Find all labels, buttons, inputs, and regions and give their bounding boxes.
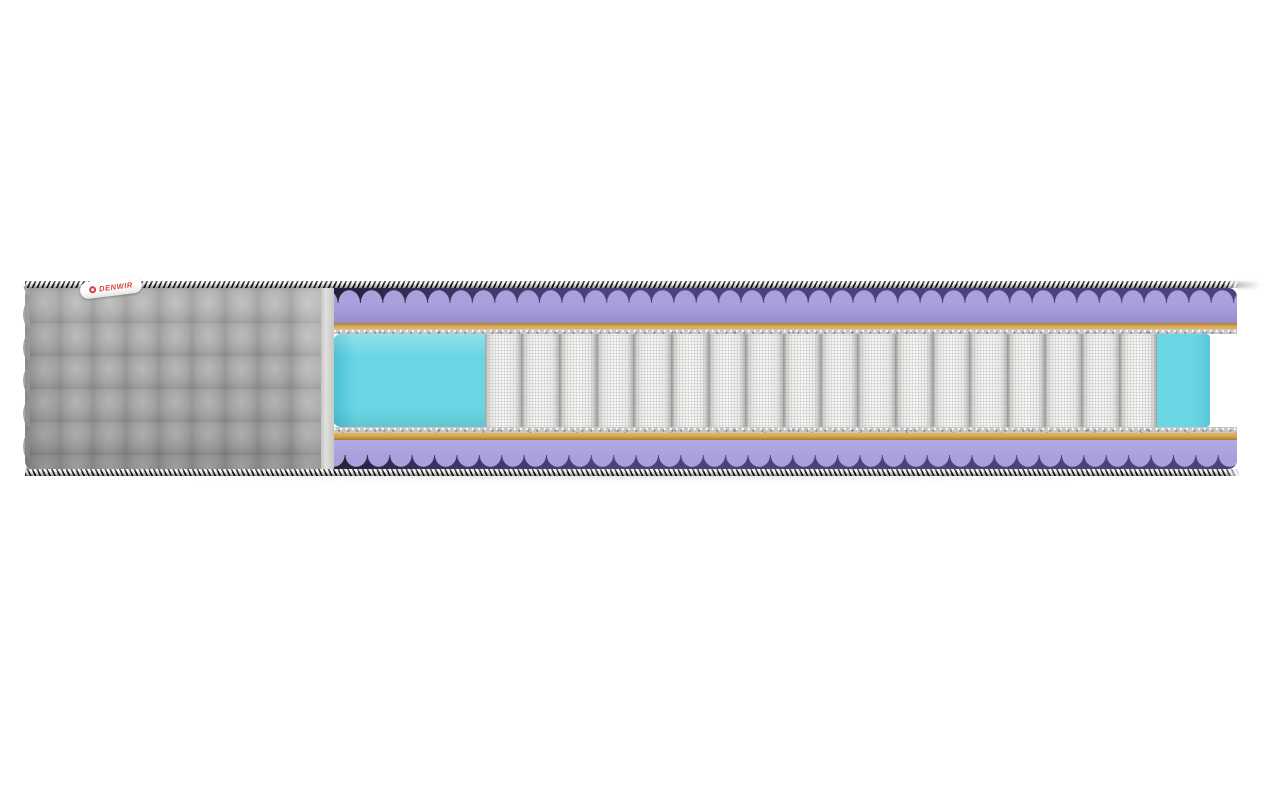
pocket-spring bbox=[709, 334, 746, 427]
bottom-edge-piping bbox=[25, 469, 1240, 476]
pocket-spring bbox=[672, 334, 709, 427]
pocket-spring bbox=[522, 334, 559, 427]
pocket-spring bbox=[858, 334, 895, 427]
brand-logo-icon bbox=[89, 286, 97, 294]
brand-label-text: DENWIR bbox=[99, 281, 134, 293]
pocket-spring bbox=[1045, 334, 1082, 427]
pocket-spring bbox=[485, 334, 522, 427]
pocket-spring bbox=[933, 334, 970, 427]
product-scene: DENWIR bbox=[0, 0, 1280, 800]
pocket-spring bbox=[970, 334, 1007, 427]
quilted-cover bbox=[25, 286, 321, 471]
pocket-spring bbox=[784, 334, 821, 427]
cover-cut-face bbox=[319, 286, 334, 471]
springs-row bbox=[485, 334, 1157, 427]
pocket-spring bbox=[634, 334, 671, 427]
pocket-spring bbox=[746, 334, 783, 427]
pocket-spring bbox=[1082, 334, 1119, 427]
pocket-spring bbox=[560, 334, 597, 427]
bottom-pad-sheet-layer bbox=[333, 433, 1237, 440]
pocket-spring bbox=[896, 334, 933, 427]
top-wavy-foam-layer bbox=[333, 288, 1237, 323]
mattress-cutaway: DENWIR bbox=[25, 281, 1240, 476]
side-support-foam-right bbox=[1157, 334, 1210, 427]
spring-core-block bbox=[333, 334, 1237, 427]
pocket-spring bbox=[597, 334, 634, 427]
cross-section bbox=[333, 288, 1237, 469]
piping-fade-tail bbox=[1237, 282, 1261, 288]
top-edge-piping bbox=[25, 281, 1240, 288]
pocket-spring bbox=[1120, 334, 1157, 427]
bottom-wavy-foam-layer bbox=[333, 440, 1237, 469]
side-support-foam-left bbox=[333, 334, 485, 427]
pocket-spring bbox=[1008, 334, 1045, 427]
pocket-spring bbox=[821, 334, 858, 427]
